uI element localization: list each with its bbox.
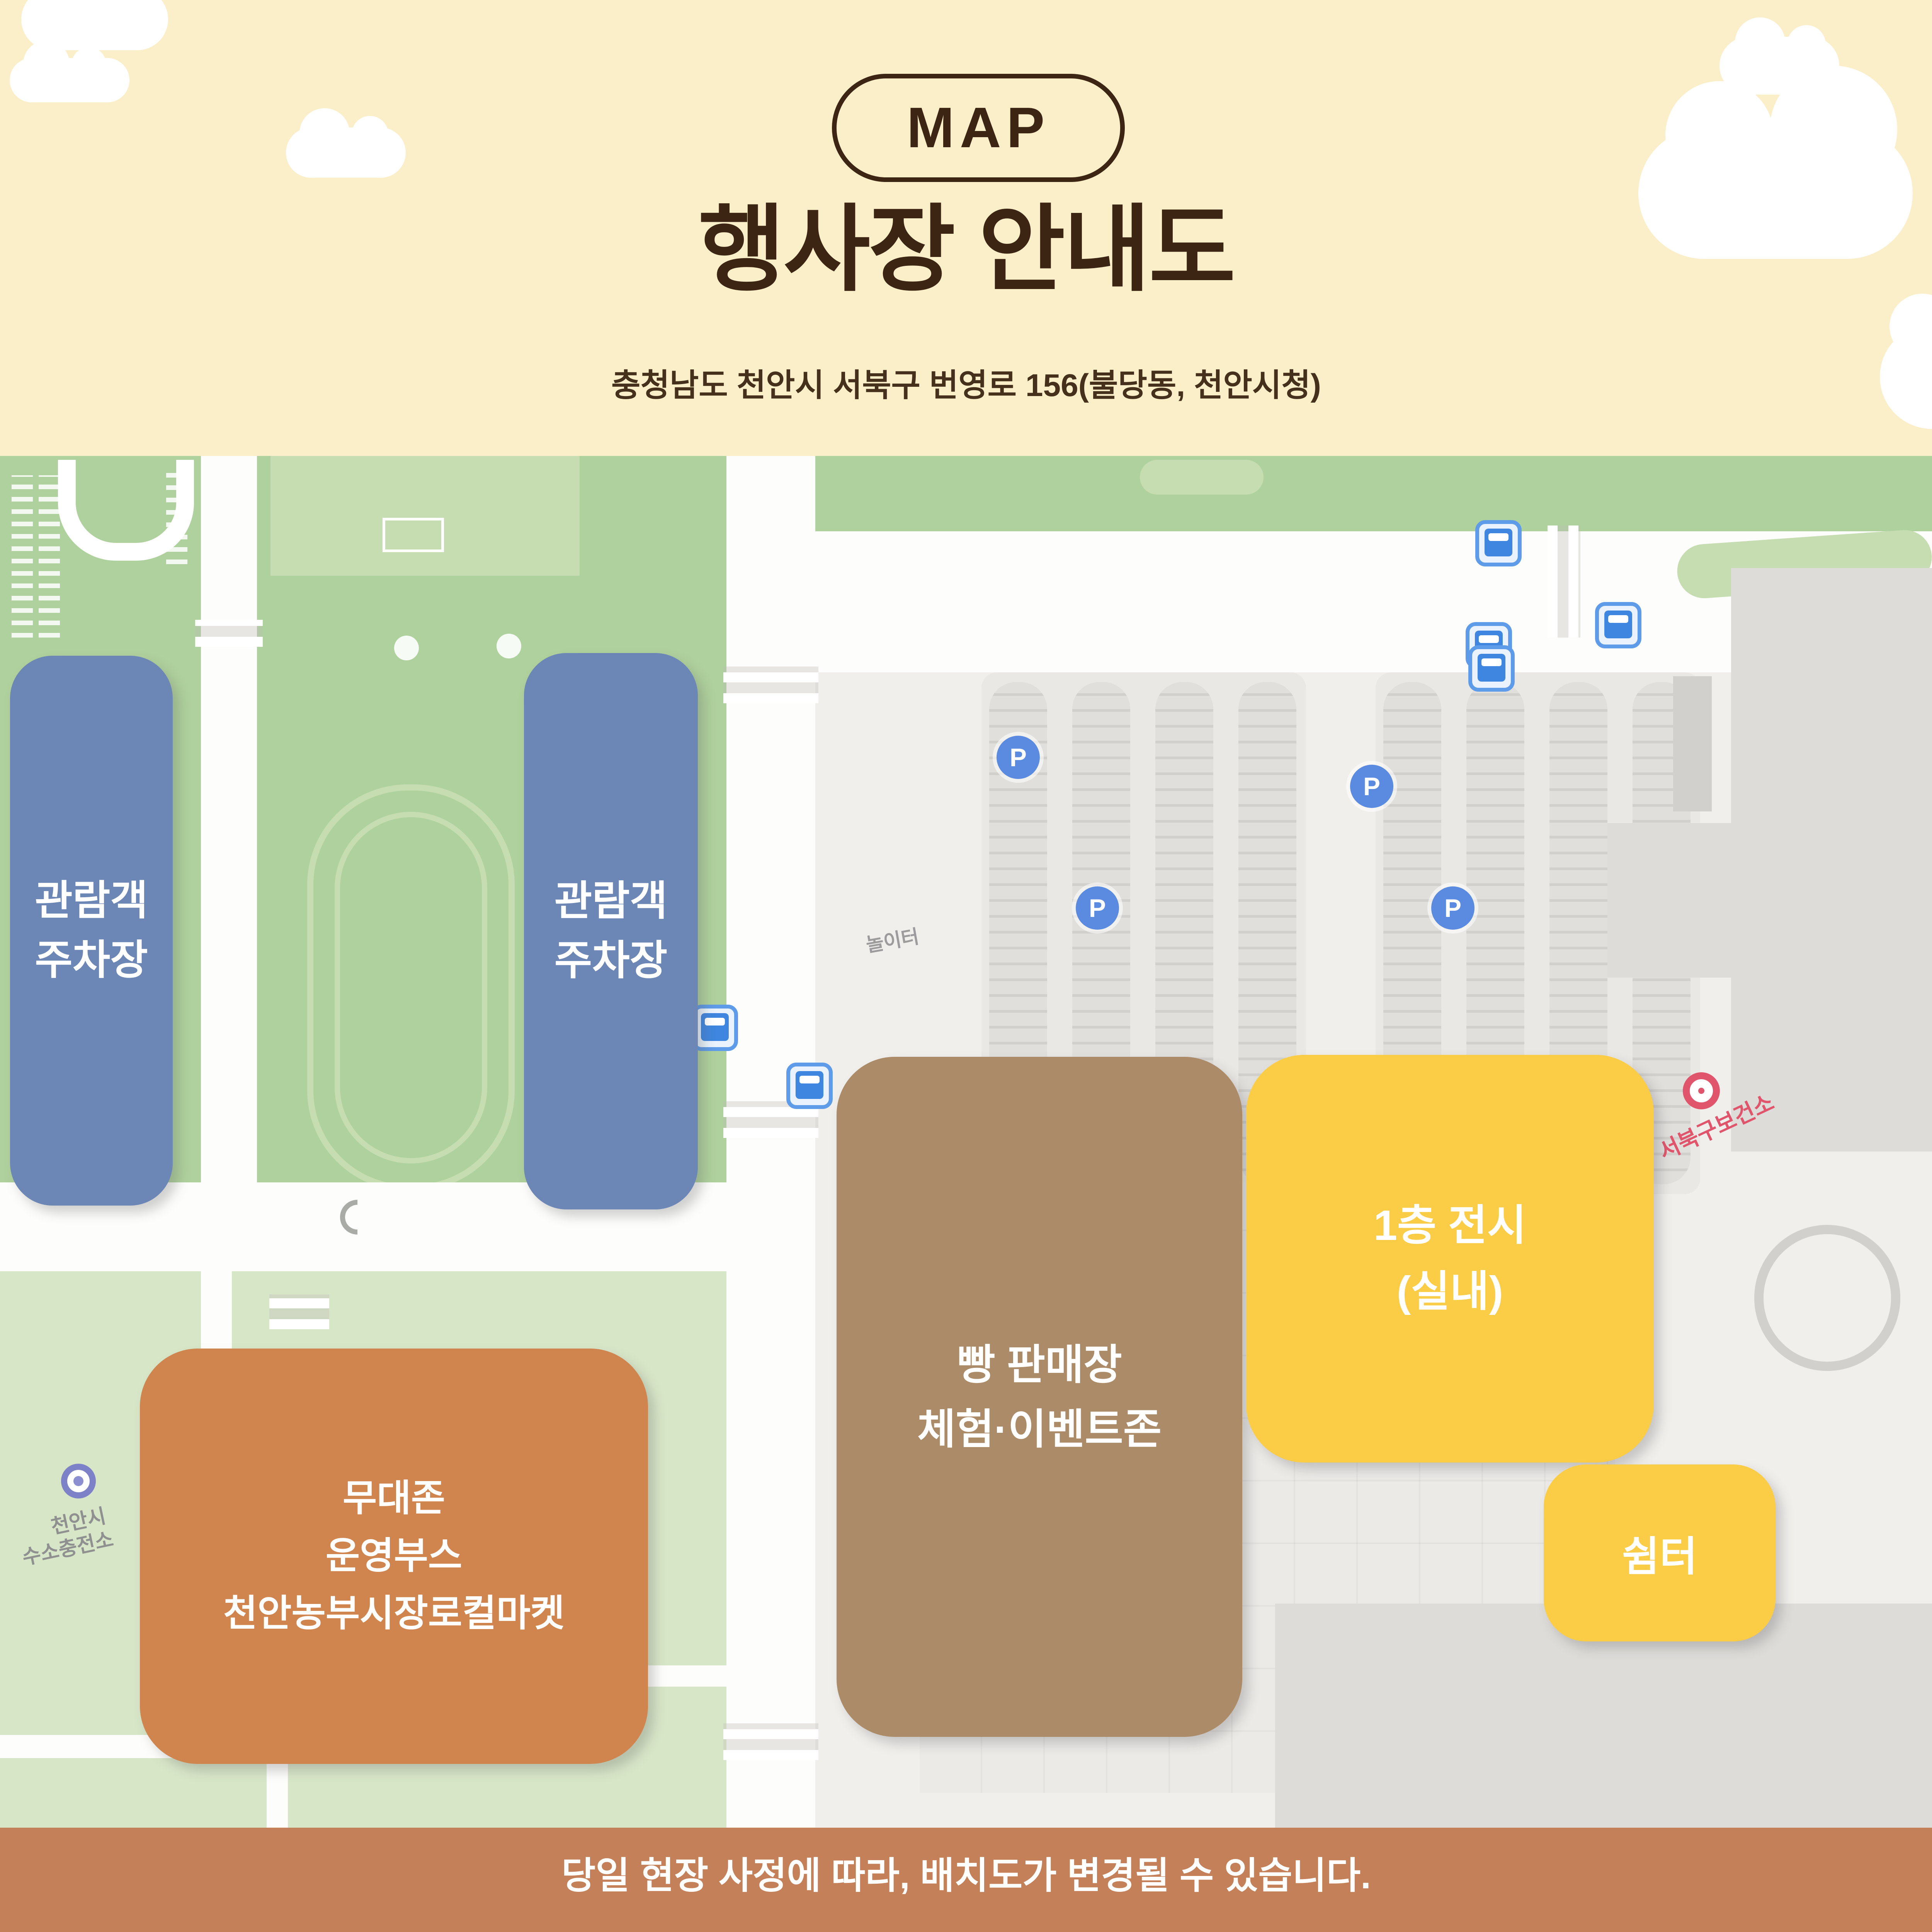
- sports-field: [270, 456, 580, 576]
- zone-label: 빵 판매장 체험·이벤트존: [917, 1332, 1162, 1462]
- crosswalk: [269, 1294, 329, 1329]
- park-loop-path: [58, 460, 194, 561]
- zone-visitor-parking-2: 관람객 주차장: [524, 653, 698, 1209]
- zone-bread-sale-event: 빵 판매장 체험·이벤트존: [837, 1057, 1242, 1737]
- zone-stage-booth-market: 무대존 운영부스 천안농부시장로컬마켓: [140, 1349, 648, 1764]
- parking-icon: P: [1431, 886, 1475, 930]
- zone-label: 무대존 운영부스 천안농부시장로컬마켓: [223, 1470, 565, 1642]
- bus-stop-icon: [1468, 645, 1515, 692]
- bus-stop-icon: [1595, 602, 1641, 648]
- park-parking-hatch: [12, 475, 33, 638]
- venue-address: 충청남도 천안시 서북구 번영로 156(불당동, 천안시청): [0, 359, 1932, 405]
- event-map-poster: MAP 행사장 안내도 충청남도 천안시 서북구 번영로 156(불당동, 천안…: [0, 0, 1932, 1932]
- map-badge: MAP: [832, 74, 1125, 182]
- zone-label: 1층 전시 (실내): [1374, 1193, 1526, 1325]
- field-goal-box: [383, 518, 444, 552]
- header: MAP 행사장 안내도 충청남도 천안시 서북구 번영로 156(불당동, 천안…: [0, 0, 1932, 456]
- crosswalk: [1548, 526, 1580, 638]
- building-east: [1731, 568, 1932, 1151]
- park-strip-top: [815, 456, 1932, 533]
- tree-icon: [394, 636, 419, 660]
- bus-stop-icon: [692, 1005, 738, 1051]
- crosswalk: [723, 1723, 818, 1760]
- zone-exhibit-1f-indoor: 1층 전시 (실내): [1246, 1055, 1654, 1463]
- tree-icon: [497, 634, 521, 658]
- zone-visitor-parking-1: 관람객 주차장: [10, 656, 173, 1206]
- plaza-circle: [1754, 1225, 1900, 1371]
- footer-notice-text: 당일 현장 사정에 따라, 배치도가 변경될 수 있습니다.: [561, 1845, 1371, 1899]
- zone-label: 관람객 주차장: [35, 871, 148, 990]
- crosswalk: [195, 620, 263, 647]
- building-mid: [1607, 823, 1731, 978]
- parking-icon: P: [997, 736, 1040, 779]
- park-parking-hatch: [39, 475, 60, 638]
- page-title: 행사장 안내도: [0, 193, 1932, 306]
- building-small: [1673, 676, 1712, 811]
- zone-label: 관람객 주차장: [554, 872, 668, 990]
- hedge-strip: [1140, 460, 1264, 495]
- crosswalk: [723, 667, 818, 703]
- cloud-icon: [286, 128, 406, 178]
- zone-shelter: 쉼터: [1544, 1464, 1776, 1641]
- park-road-north-south: [201, 456, 257, 1182]
- bus-stop-icon: [1475, 520, 1522, 566]
- venue-map: P P P P 놀이터 서북구보건소 천안시 수소충전소 관람객 주차장 관람객…: [0, 456, 1932, 1828]
- parking-icon: P: [1076, 886, 1119, 930]
- parking-icon: P: [1350, 765, 1393, 808]
- hydrogen-station-icon: [61, 1464, 96, 1498]
- footer-notice-bar: 당일 현장 사정에 따라, 배치도가 변경될 수 있습니다.: [0, 1828, 1932, 1932]
- bus-stop-icon: [786, 1063, 833, 1109]
- health-center-icon: [1683, 1072, 1720, 1109]
- running-track: [307, 784, 515, 1191]
- cloud-icon: [10, 58, 129, 102]
- zone-label: 쉼터: [1622, 1523, 1697, 1583]
- main-road-north-south: [726, 456, 815, 1828]
